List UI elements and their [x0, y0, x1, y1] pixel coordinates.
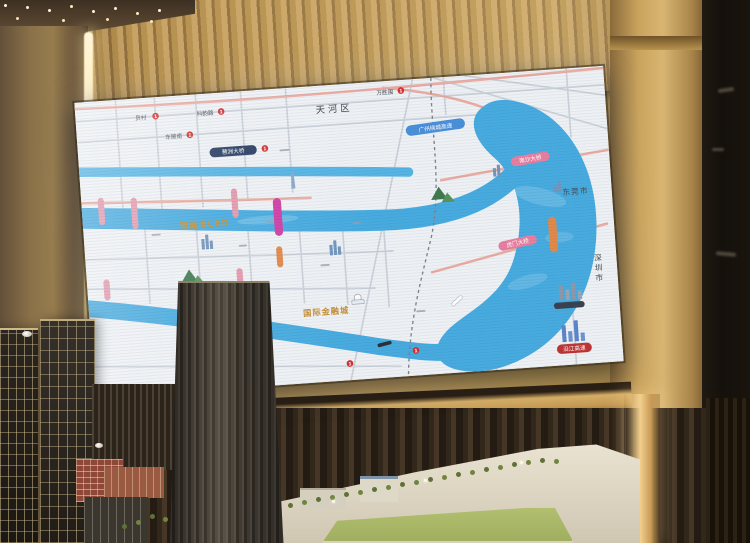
fluted-wall-right: [706, 398, 750, 543]
led-display-screen: 广州绕城高速 南沙大桥 虎门大桥 沿江高速 琶洲大桥: [74, 66, 623, 398]
model-trees-row: [288, 503, 293, 508]
model-trees-row: [150, 514, 155, 519]
svg-text:1: 1: [154, 114, 158, 120]
svg-text:1: 1: [188, 132, 192, 138]
ceiling-lights-icon: [4, 4, 7, 7]
showroom-photo: 广州绕城高速 南沙大桥 虎门大桥 沿江高速 琶洲大桥: [0, 0, 750, 543]
pearl-river-map: 广州绕城高速 南沙大桥 虎门大桥 沿江高速 琶洲大桥: [74, 66, 623, 398]
svg-text:1: 1: [263, 146, 267, 152]
model-light-pole: [424, 479, 427, 482]
rooftop-dish-icon: [22, 331, 32, 337]
model-brick-building: [104, 467, 164, 498]
pillar-beam: [610, 36, 706, 50]
model-light-pole: [520, 461, 523, 464]
model-tower-left-a: [0, 328, 38, 543]
svg-text:1: 1: [399, 88, 403, 94]
label-dongguan-city: 东莞市: [562, 185, 589, 197]
rooftop-dish-icon: [95, 443, 103, 448]
svg-text:1: 1: [219, 109, 223, 115]
reflection-smudge: [712, 148, 724, 151]
model-white-building: [360, 476, 398, 502]
model-main-tower: [170, 281, 287, 543]
model-midrise-block: [92, 384, 178, 470]
svg-text:1: 1: [414, 348, 418, 354]
model-low-building: [84, 497, 148, 543]
svg-text:1: 1: [348, 361, 352, 367]
model-white-building: [300, 488, 346, 510]
map-display: 广州绕城高速 南沙大桥 虎门大桥 沿江高速 琶洲大桥: [74, 66, 623, 398]
label-tianhe-district: 天河区: [315, 102, 353, 117]
model-light-pole: [332, 500, 335, 503]
